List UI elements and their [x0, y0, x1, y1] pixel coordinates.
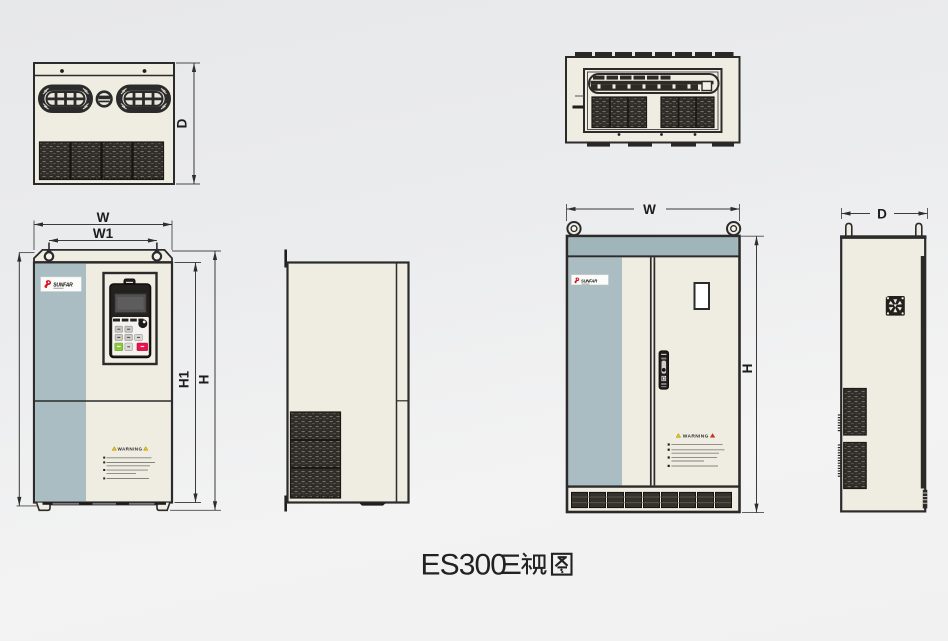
svg-text:WARNING: WARNING	[683, 434, 709, 440]
svg-text:ES300: ES300	[421, 549, 507, 582]
svg-text:D: D	[877, 206, 887, 221]
svg-text:H: H	[197, 375, 212, 385]
svg-text:W: W	[643, 202, 656, 217]
svg-text:W1: W1	[93, 226, 114, 241]
svg-text:H1: H1	[177, 370, 192, 388]
svg-text:W: W	[97, 210, 110, 225]
svg-text:H: H	[740, 364, 755, 374]
svg-text:WARNING: WARNING	[117, 447, 142, 452]
svg-text:D: D	[175, 118, 190, 128]
svg-text:SUNFAR: SUNFAR	[581, 279, 597, 284]
svg-text:SUNFAR: SUNFAR	[53, 282, 73, 288]
